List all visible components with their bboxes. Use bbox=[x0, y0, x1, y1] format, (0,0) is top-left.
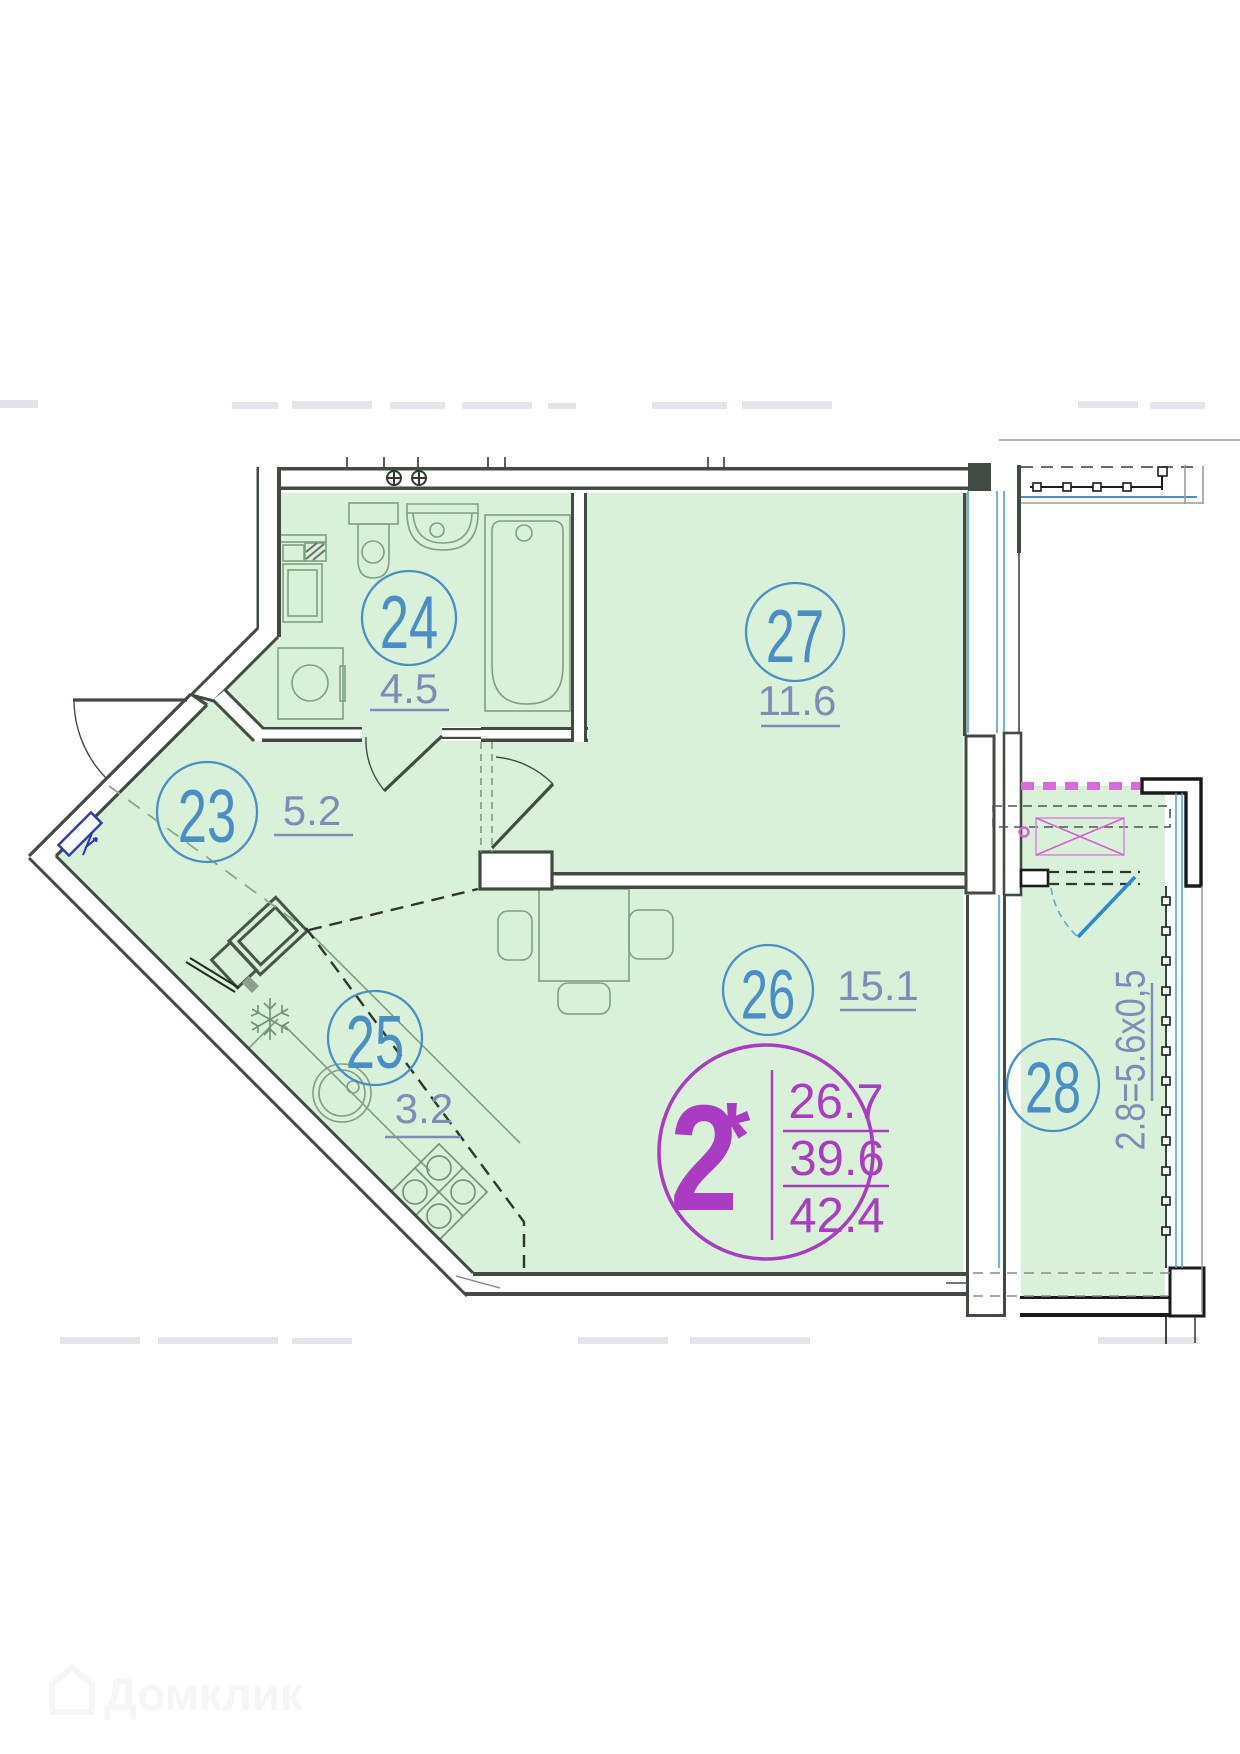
svg-text:26.7: 26.7 bbox=[788, 1075, 883, 1129]
svg-text:Домклик: Домклик bbox=[104, 1668, 304, 1720]
svg-text:26: 26 bbox=[741, 955, 796, 1034]
svg-text:28: 28 bbox=[1025, 1049, 1081, 1129]
svg-text:4.5: 4.5 bbox=[380, 665, 438, 712]
svg-text:15.1: 15.1 bbox=[837, 962, 919, 1009]
svg-text:*: * bbox=[713, 1083, 751, 1190]
svg-text:25: 25 bbox=[346, 1000, 404, 1085]
svg-text:42.4: 42.4 bbox=[789, 1189, 884, 1243]
svg-text:3.2: 3.2 bbox=[395, 1085, 453, 1132]
svg-text:23: 23 bbox=[178, 774, 236, 859]
svg-text:39.6: 39.6 bbox=[789, 1132, 884, 1186]
svg-text:24: 24 bbox=[380, 580, 438, 665]
svg-text:2.8=5.6x0,5: 2.8=5.6x0,5 bbox=[1107, 970, 1154, 1151]
svg-text:27: 27 bbox=[766, 594, 824, 679]
svg-text:5.2: 5.2 bbox=[283, 787, 341, 834]
svg-text:11.6: 11.6 bbox=[758, 677, 837, 724]
